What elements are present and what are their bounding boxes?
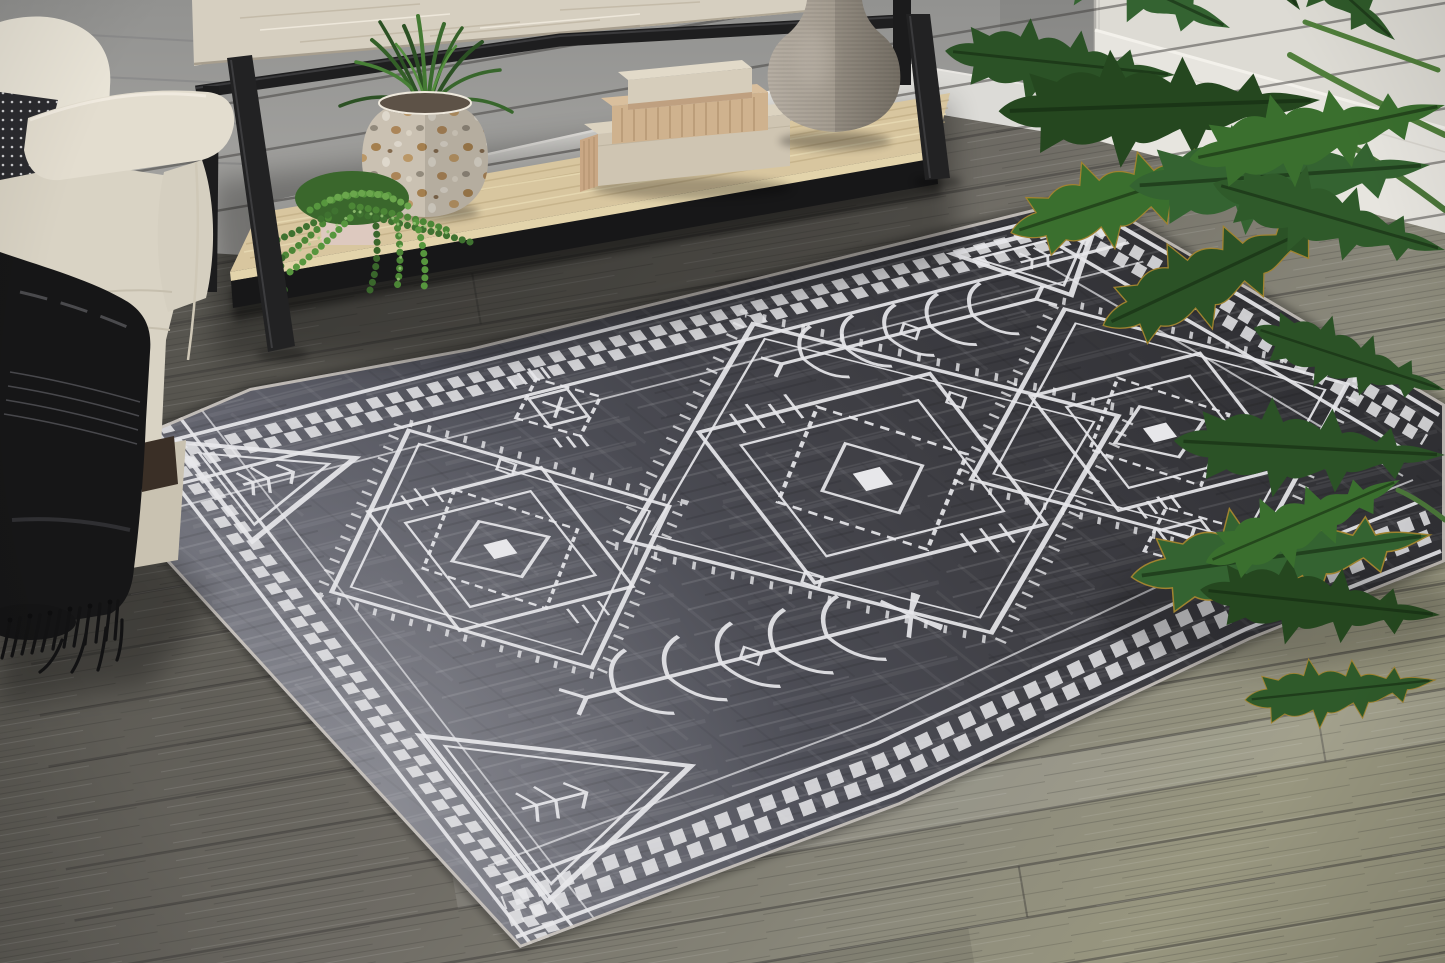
vignette-overlay: [0, 0, 1445, 963]
scene-photo: [0, 0, 1445, 963]
